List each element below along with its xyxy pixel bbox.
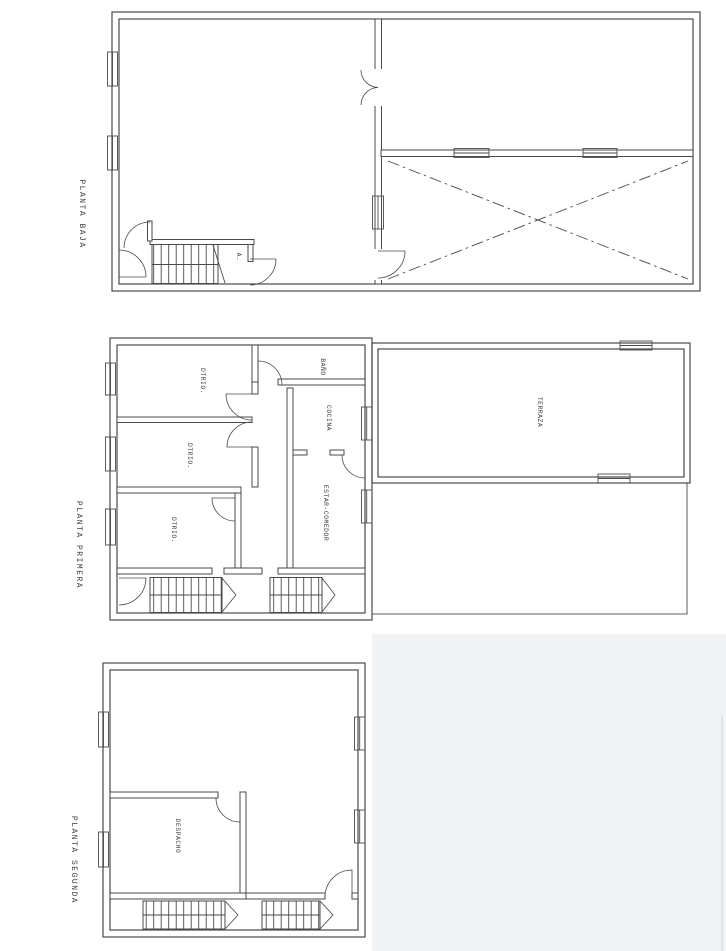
door-arc [250, 259, 276, 285]
room-label-estar-comedor: ESTAR-COMEDOR [322, 485, 329, 541]
door-arc-stair-hall [119, 578, 146, 605]
door-arc-dtrio-2 [227, 422, 252, 447]
plan-planta-primera: PLANTA PRIMERA [74, 338, 690, 620]
plan-title-planta-segunda: PLANTA SEGUNDA [69, 816, 78, 904]
door-arc-terraza [342, 455, 365, 478]
entry-door-arcs [119, 221, 152, 277]
patio-cross [388, 161, 688, 279]
door-arc-despacho [216, 798, 240, 822]
room-label-a: A. [235, 253, 242, 262]
door-arc-stair-hall [325, 870, 352, 896]
room-label-dtrio-3: DTRIO. [170, 517, 177, 543]
scanned-floorplan-page: { "drawing": { "colors": { "ink": "#4a4a… [0, 0, 726, 951]
interior-walls [110, 792, 358, 899]
door-arcs [216, 798, 352, 896]
window-marks [99, 712, 366, 867]
room-label-bano: BAÑO [319, 358, 327, 375]
plan-planta-segunda: PLANTA SEGUNDA [69, 663, 365, 937]
door-arc-dtrio-1 [226, 394, 252, 420]
room-a: A. [235, 245, 276, 286]
door-arc-dtrio-3 [212, 498, 235, 521]
plan-title-planta-primera: PLANTA PRIMERA [74, 501, 83, 589]
room-label-terraza: TERRAZA [536, 397, 543, 427]
stairs-first-floor [150, 578, 335, 613]
plan-planta-baja: PLANTA BAJA [77, 12, 700, 291]
room-label-dtrio-1: DTRIO. [199, 368, 206, 394]
room-label-despacho: DESPACHO [174, 819, 181, 854]
stairs-second-floor [143, 901, 333, 929]
room-label-dtrio-2: DTRIO. [186, 443, 193, 469]
floorplan-drawing: PLANTA BAJA [0, 0, 726, 951]
interior-wall-horizontal [381, 149, 693, 158]
room-label-cocina: COCINA [325, 405, 332, 431]
stairs-ground-floor [150, 240, 254, 284]
plan-title-planta-baja: PLANTA BAJA [77, 179, 86, 248]
